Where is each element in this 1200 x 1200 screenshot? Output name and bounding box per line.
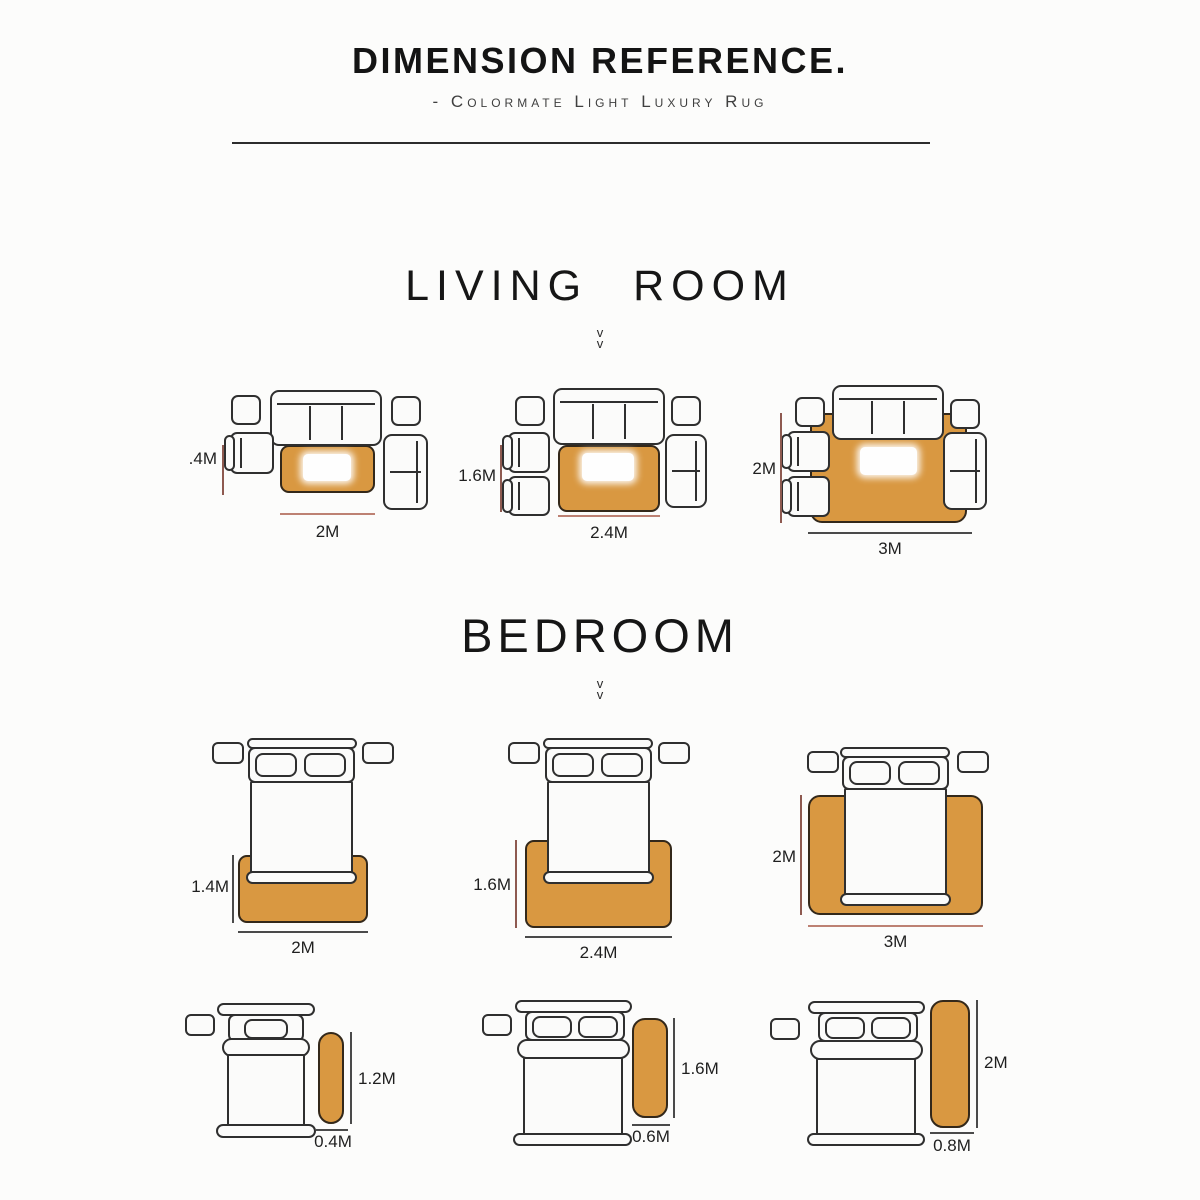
bed-foot-bar xyxy=(543,871,654,884)
footboard xyxy=(216,1124,316,1138)
bedside-runner-layout-3: 2M 0.8M xyxy=(770,990,1080,1175)
height-dimension-label: 2M xyxy=(740,460,776,479)
nightstand xyxy=(957,751,989,773)
living-room-layout-3: 2M 3M xyxy=(755,380,1065,585)
width-dimension-label: 2M xyxy=(280,523,375,542)
sofa xyxy=(832,385,944,440)
header-divider xyxy=(232,142,930,144)
nightstand xyxy=(362,742,394,764)
height-dimension-label: 2M xyxy=(760,848,796,867)
bolster xyxy=(810,1040,923,1060)
height-dimension-label: 1.4M xyxy=(179,878,229,897)
height-dimension-label: 1.2M xyxy=(358,1070,396,1089)
height-dimension-line xyxy=(673,1018,675,1118)
bed-body xyxy=(523,1057,623,1135)
bed-body xyxy=(816,1058,916,1135)
nightstand xyxy=(807,751,839,773)
height-dimension-line xyxy=(222,445,224,495)
bed-body xyxy=(250,781,353,881)
sofa xyxy=(553,388,665,445)
armchair xyxy=(508,432,550,473)
height-dimension-line xyxy=(500,445,502,512)
width-dimension-label: 2.4M xyxy=(525,944,672,963)
width-dimension-label: 2.4M xyxy=(558,524,660,543)
loveseat xyxy=(665,434,707,508)
side-table xyxy=(231,395,261,425)
pillow xyxy=(532,1016,572,1038)
width-dimension-label: 2M xyxy=(238,939,368,958)
nightstand xyxy=(482,1014,512,1036)
nightstand xyxy=(658,742,690,764)
page-subtitle: - Colormate Light Luxury Rug xyxy=(0,92,1200,112)
runner-rug xyxy=(930,1000,970,1128)
dimension-reference-poster: DIMENSION REFERENCE. - Colormate Light L… xyxy=(0,0,1200,1200)
armchair xyxy=(508,476,550,516)
bedroom-layout-2: 1.6M 2.4M xyxy=(465,733,765,973)
pillow xyxy=(255,753,297,777)
height-dimension-line xyxy=(232,855,234,923)
footboard xyxy=(513,1133,632,1146)
runner-rug xyxy=(632,1018,668,1118)
loveseat xyxy=(943,432,987,510)
pillow xyxy=(825,1017,865,1039)
pillow xyxy=(898,761,940,785)
living-room-chevrons: v v xyxy=(0,327,1200,349)
coffee-table xyxy=(303,454,351,481)
bed-foot-bar xyxy=(840,893,951,906)
width-dimension-line xyxy=(316,1129,348,1131)
pillow xyxy=(578,1016,618,1038)
bedroom-heading: BEDROOM xyxy=(0,608,1200,663)
chevron-down-icon: v xyxy=(0,689,1200,700)
side-table xyxy=(795,397,825,427)
side-table xyxy=(671,396,701,426)
side-table xyxy=(515,396,545,426)
width-dimension-label: 0.6M xyxy=(627,1128,675,1147)
width-dimension-line xyxy=(930,1132,974,1134)
runner-rug xyxy=(318,1032,344,1124)
height-dimension-line xyxy=(780,413,782,523)
height-dimension-label: .4M xyxy=(181,450,217,469)
bed-foot-bar xyxy=(246,871,357,884)
pillow xyxy=(871,1017,911,1039)
height-dimension-line xyxy=(976,1000,978,1128)
nightstand xyxy=(770,1018,800,1040)
coffee-table xyxy=(582,453,634,481)
height-dimension-label: 2M xyxy=(984,1054,1008,1073)
side-table xyxy=(391,396,421,426)
width-dimension-line xyxy=(632,1124,670,1126)
width-dimension-line xyxy=(280,513,375,515)
bed-body xyxy=(844,788,947,903)
height-dimension-line xyxy=(800,795,802,915)
bedside-runner-layout-2: 1.6M 0.6M xyxy=(468,990,768,1165)
height-dimension-label: 1.6M xyxy=(465,876,511,895)
nightstand xyxy=(508,742,540,764)
armchair xyxy=(787,476,830,517)
coffee-table xyxy=(860,447,917,475)
width-dimension-label: 3M xyxy=(808,933,983,952)
height-dimension-label: 1.6M xyxy=(450,467,496,486)
height-dimension-line xyxy=(350,1032,352,1124)
bedroom-layout-3: 2M 3M xyxy=(762,733,1072,988)
bolster xyxy=(517,1039,630,1059)
pillow xyxy=(849,761,891,785)
width-dimension-line xyxy=(808,925,983,927)
living-room-heading: LIVING ROOM xyxy=(0,262,1200,311)
pillow xyxy=(304,753,346,777)
armchair xyxy=(230,432,274,474)
armchair xyxy=(787,431,830,472)
footboard xyxy=(807,1133,925,1146)
bedside-runner-layout-1: 1.2M 0.4M xyxy=(180,990,470,1165)
side-table xyxy=(950,399,980,429)
nightstand xyxy=(212,742,244,764)
pillow xyxy=(552,753,594,777)
width-dimension-label: 0.8M xyxy=(926,1137,978,1156)
width-dimension-label: 3M xyxy=(808,540,972,559)
height-dimension-line xyxy=(515,840,517,928)
sofa xyxy=(270,390,382,446)
width-dimension-line xyxy=(525,936,672,938)
bed-body xyxy=(547,781,650,881)
chevron-down-icon: v xyxy=(0,338,1200,349)
width-dimension-line xyxy=(808,532,972,534)
pillow xyxy=(601,753,643,777)
height-dimension-label: 1.6M xyxy=(681,1060,719,1079)
bedroom-chevrons: v v xyxy=(0,678,1200,700)
width-dimension-line xyxy=(238,931,368,933)
bed-body xyxy=(227,1054,305,1126)
width-dimension-line xyxy=(558,515,660,517)
bedroom-layout-1: 1.4M 2M xyxy=(175,733,465,963)
nightstand xyxy=(185,1014,215,1036)
width-dimension-label: 0.4M xyxy=(310,1133,356,1152)
loveseat xyxy=(383,434,428,510)
pillow xyxy=(244,1019,288,1039)
page-title: DIMENSION REFERENCE. xyxy=(0,40,1200,82)
